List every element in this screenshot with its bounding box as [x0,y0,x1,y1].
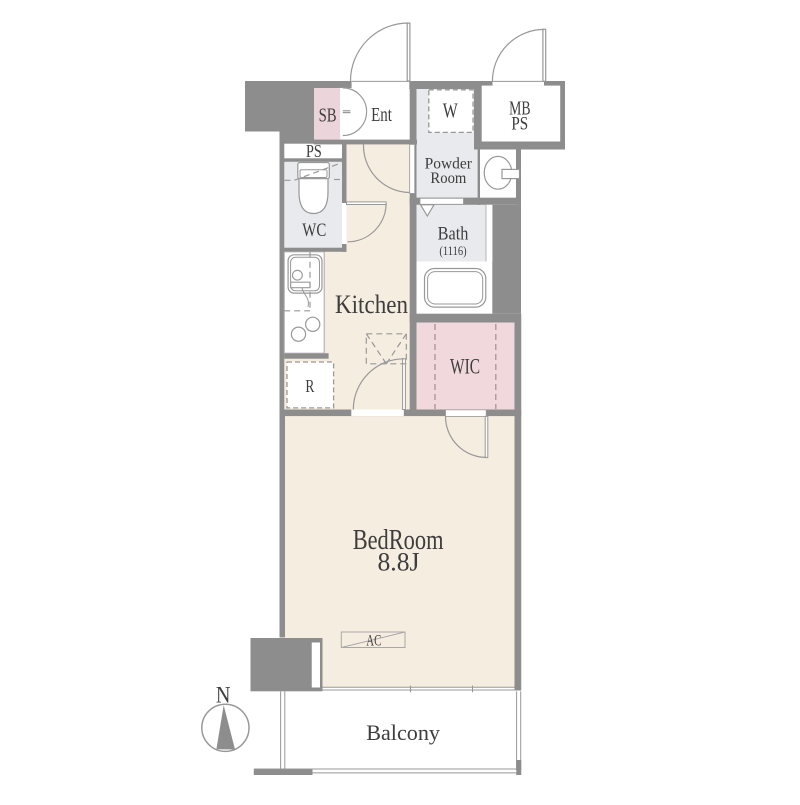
svg-text:SB: SB [319,105,337,127]
svg-text:WIC: WIC [450,354,480,379]
svg-text:Balcony: Balcony [366,720,441,745]
svg-text:8.8J: 8.8J [378,548,420,577]
svg-text:PS: PS [306,141,322,161]
svg-text:Bath: Bath [438,225,469,245]
svg-text:WC: WC [302,220,326,241]
svg-text:AC: AC [366,633,381,650]
svg-text:PS: PS [511,114,528,135]
svg-text:N: N [216,683,231,708]
svg-text:Kitchen: Kitchen [335,290,408,319]
svg-text:R: R [305,376,314,396]
svg-text:W: W [443,99,458,123]
svg-text:(1116): (1116) [439,244,466,258]
svg-text:Room: Room [430,170,466,187]
svg-text:Ent: Ent [371,105,392,126]
